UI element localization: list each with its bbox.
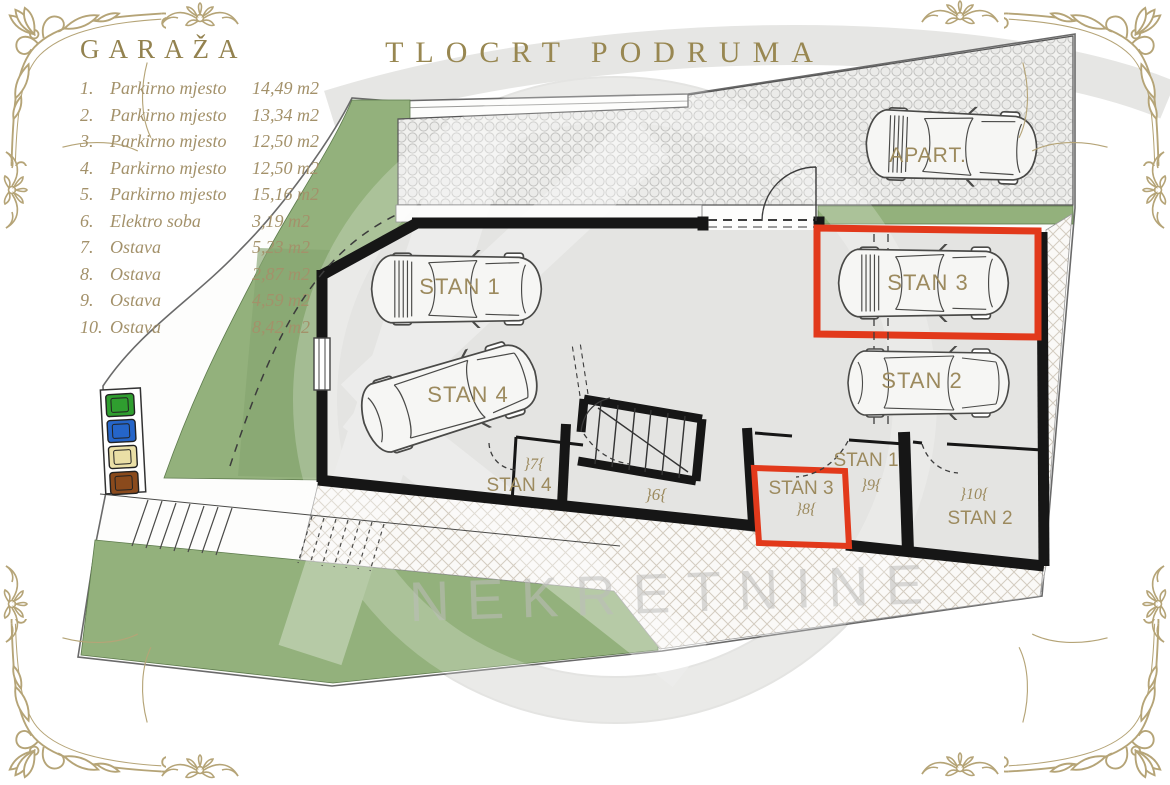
legend-item: 7.Ostava5,23 m2 bbox=[80, 234, 330, 261]
floor-plan-page: APART. STAN 1 STAN 3 STAN 2 STAN 4 STAN … bbox=[0, 0, 1170, 785]
legend-item: 1.Parkirno mjesto14,49 m2 bbox=[80, 75, 330, 102]
legend-item: 2.Parkirno mjesto13,34 m2 bbox=[80, 102, 330, 129]
edge-fleuron-bottom-left bbox=[162, 755, 238, 778]
room-label-stan1: STAN 1 bbox=[833, 450, 898, 471]
room-num-stan3: }8{ bbox=[796, 501, 817, 518]
legend-item: 9.Ostava4,59 m2 bbox=[80, 287, 330, 314]
edge-fleuron-bottom-right bbox=[922, 753, 998, 776]
car-label-stan1: STAN 1 bbox=[419, 274, 500, 299]
car-label-stan3: STAN 3 bbox=[887, 270, 968, 295]
bin-green bbox=[106, 393, 135, 416]
waste-bins bbox=[100, 388, 145, 495]
bin-yellow bbox=[108, 445, 137, 468]
window-left-wall bbox=[314, 338, 330, 390]
car-label-stan2: STAN 2 bbox=[881, 368, 962, 393]
legend-title: GARAŽA bbox=[80, 34, 330, 65]
legend-item: 4.Parkirno mjesto12,50 m2 bbox=[80, 155, 330, 182]
edge-fleuron-right-lower bbox=[1143, 566, 1166, 642]
room-label-stan4: STAN 4 bbox=[486, 475, 552, 496]
bin-blue bbox=[107, 419, 136, 442]
room-num-stan2: }10{ bbox=[960, 486, 989, 503]
page-title: TLOCRT PODRUMA bbox=[330, 36, 880, 70]
legend-item: 6.Elektro soba3,19 m2 bbox=[80, 208, 330, 235]
edge-fleuron-left-lower bbox=[5, 566, 28, 642]
edge-fleuron-top-left bbox=[162, 3, 238, 26]
room-label-stan2: STAN 2 bbox=[947, 508, 1012, 529]
room-label-stan3: STAN 3 bbox=[768, 478, 833, 499]
edge-fleuron-top-right bbox=[922, 1, 998, 24]
car-label-apart: APART. bbox=[889, 144, 967, 167]
room-num-stan1: }9{ bbox=[861, 477, 882, 494]
car-label-stan4: STAN 4 bbox=[427, 382, 508, 407]
legend-item: 5.Parkirno mjesto15,16 m2 bbox=[80, 181, 330, 208]
legend-item: 8.Ostava2,87 m2 bbox=[80, 261, 330, 288]
room-num-stan4: }7{ bbox=[524, 456, 545, 473]
garage-legend: GARAŽA 1.Parkirno mjesto14,49 m2 2.Parki… bbox=[80, 34, 330, 340]
room-num-6: }6{ bbox=[645, 485, 667, 504]
corner-ornament-bottom-right bbox=[994, 609, 1160, 777]
legend-item: 10.Ostava8,42 m2 bbox=[80, 314, 330, 341]
legend-item: 3.Parkirno mjesto12,50 m2 bbox=[80, 128, 330, 155]
bin-brown bbox=[110, 471, 139, 494]
